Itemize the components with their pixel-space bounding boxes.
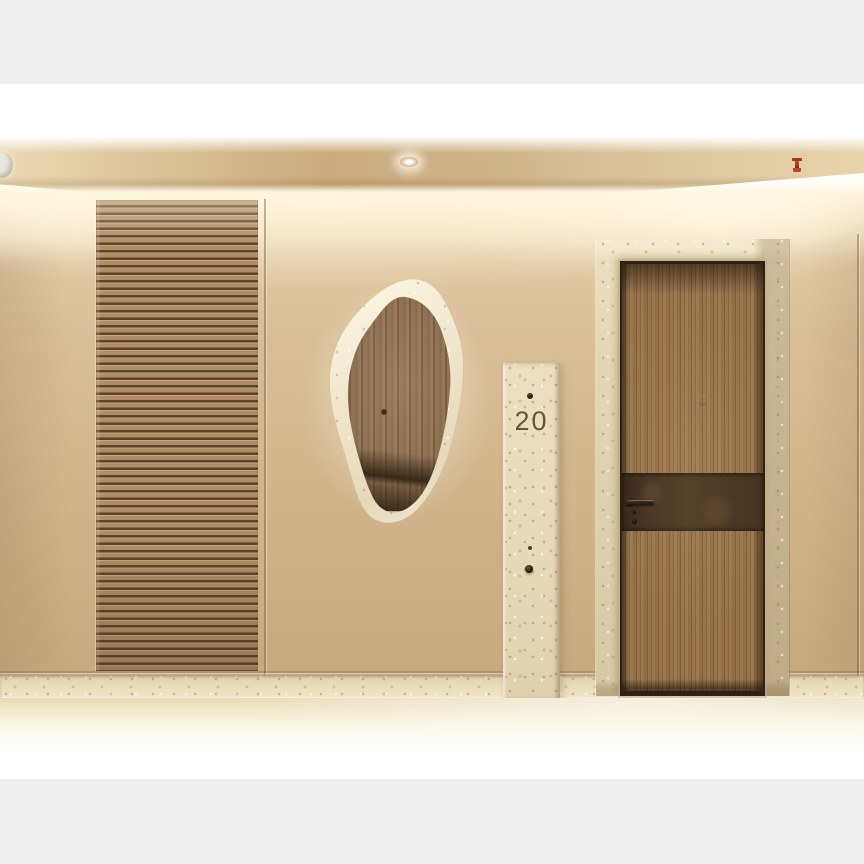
wood-slat-panel <box>96 200 258 671</box>
listing-image-canvas: 20 <box>0 0 864 864</box>
adjacent-door-frame-edge <box>857 234 859 692</box>
door-peephole <box>699 396 707 404</box>
door-slab <box>622 264 763 691</box>
door-keyhole-dot <box>633 511 636 514</box>
wall-groove-right <box>789 671 864 673</box>
corridor-photo: 20 <box>0 84 864 779</box>
unit-number: 20 <box>503 407 560 435</box>
corridor-floor <box>0 698 864 779</box>
fire-sprinkler-icon <box>792 158 802 174</box>
sprinkler-base <box>793 168 801 172</box>
door-handle-lever <box>629 500 654 505</box>
doorbell-button <box>525 565 533 573</box>
door-lock-cylinder <box>632 519 637 524</box>
plaque-peephole-dot <box>527 393 533 399</box>
recessed-spotlight-icon <box>400 157 418 167</box>
unit-number-plaque: 20 <box>503 363 560 700</box>
door-frame-opening <box>620 261 765 696</box>
sprinkler-glass <box>795 161 799 168</box>
plaque-screw-dot <box>528 546 532 550</box>
entrance-door-assembly <box>596 239 789 696</box>
